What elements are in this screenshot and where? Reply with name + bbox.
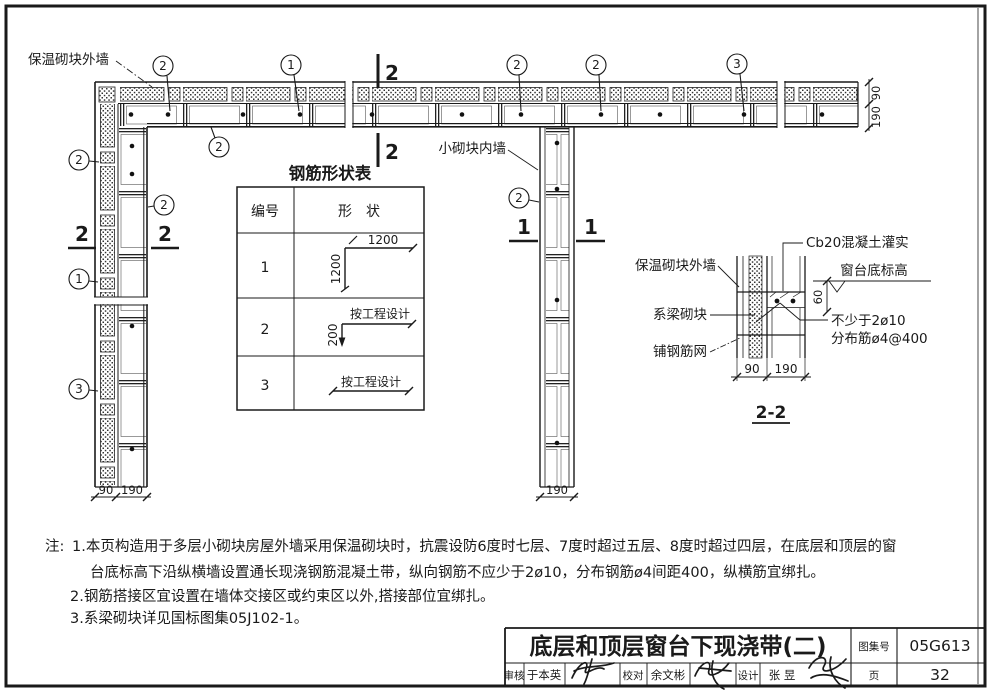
row3-dim-h: 按工程设计 <box>341 374 401 389</box>
callout-2: 2 <box>215 140 223 154</box>
cb20-label: Cb20混凝土灌实 <box>806 235 909 251</box>
col-header-no: 编号 <box>251 204 279 220</box>
row1-dim-h: 1200 <box>368 233 399 247</box>
rebar-shape-table: 钢筋形状表 编号 形 状 1 1200 1200 2 按工程设计 200 3 <box>237 163 424 410</box>
designer-name: 张 昱 <box>769 668 796 682</box>
row2-no: 2 <box>261 322 270 338</box>
proofer-name: 余文彬 <box>651 668 686 682</box>
callout-2: 2 <box>513 58 521 72</box>
callout-2: 2 <box>160 198 168 212</box>
section-mark-2-bottom: 2 <box>378 133 399 167</box>
signature-scribbles <box>572 657 848 689</box>
drawing-canvas: 90 190 <box>0 0 995 692</box>
callout-2: 2 <box>592 58 600 72</box>
callout-3: 3 <box>75 382 83 396</box>
row2-shape <box>339 320 416 347</box>
section-2-label: 2 <box>385 140 399 164</box>
callout-3: 3 <box>733 57 741 71</box>
interior-wall-label: 小砌块内墙 <box>439 141 507 157</box>
wall-thickness-dim: 90 190 <box>865 78 883 132</box>
dim-60: 60 <box>811 290 825 305</box>
rebar-table-title: 钢筋形状表 <box>289 163 372 183</box>
dim-left-190: 190 <box>121 483 143 497</box>
callout-2: 2 <box>75 153 83 167</box>
dim-left-90: 90 <box>99 483 114 497</box>
exterior-wall-label: 保温砌块外墙 <box>28 52 109 68</box>
wall-break-mark-left <box>93 297 149 305</box>
section-2-label: 2 <box>158 222 172 246</box>
note-line-3: 2.钢筋搭接区宜设置在墙体交接区或约束区以外,搭接部位宜绑扎。 <box>70 587 494 605</box>
dim-right-190: 190 <box>869 106 883 128</box>
rebar-mesh-label: 铺钢筋网 <box>653 343 707 360</box>
detail-dim-90: 90 <box>744 362 759 376</box>
exterior-wall-vertical: 90 190 <box>91 82 151 501</box>
row1-dim-v: 1200 <box>329 254 343 285</box>
callout-2: 2 <box>159 59 167 73</box>
section-2-label: 2 <box>75 222 89 246</box>
callout-1: 1 <box>287 58 295 72</box>
page-number: 32 <box>930 666 950 684</box>
left-wall-bottom-dim: 90 190 <box>91 483 151 501</box>
signature-scribble-designer <box>809 657 848 688</box>
review-label: 审核 <box>504 669 525 682</box>
callout-2: 2 <box>515 191 523 205</box>
callout-1: 1 <box>75 272 83 286</box>
detail-dim-60: 60 <box>811 277 831 316</box>
row2-dim-v: 200 <box>326 324 340 347</box>
page-label: 页 <box>869 670 880 682</box>
drawing-sheet: 90 190 <box>0 0 995 692</box>
reviewer-name: 于本英 <box>527 668 562 682</box>
rebar-min-label: 不少于2ø10 <box>831 313 906 329</box>
note-line-2: 台底标高下沿纵横墙设置通长现浇钢筋混凝土带，纵向钢筋不应少于2ø10，分布钢筋ø… <box>90 563 825 581</box>
detail-dim-190: 190 <box>775 362 798 376</box>
interior-wall: 190 <box>536 127 578 501</box>
notes: 注: 1.本页构造用于多层小砌块房屋外墙采用保温砌块时，抗震设防6度时七层、7度… <box>45 537 897 627</box>
sill-elevation-label: 窗台底标高 <box>840 262 908 279</box>
sill-elevation-mark <box>813 281 931 292</box>
row3-no: 3 <box>261 378 270 394</box>
design-label: 设计 <box>738 669 759 682</box>
title-block: 底层和顶层窗台下现浇带(二) 图集号 05G613 页 32 审核 于本英 校对… <box>504 628 985 689</box>
detail-wall-section <box>737 256 828 358</box>
row2-dim-h: 按工程设计 <box>350 306 410 321</box>
proof-label: 校对 <box>623 669 644 682</box>
section-2-label: 2 <box>385 61 399 85</box>
detail-exterior-wall-label: 保温砌块外墙 <box>635 258 716 274</box>
interior-wall-bottom-dim: 190 <box>536 483 578 501</box>
detail-2-2: 保温砌块外墙 系梁砌块 铺钢筋网 Cb20混凝土灌实 窗台底标高 60 不少于2… <box>635 235 931 423</box>
section-1-label: 1 <box>517 215 531 239</box>
row1-no: 1 <box>261 260 270 276</box>
detail-title: 2-2 <box>756 403 787 423</box>
col-header-shape: 形 状 <box>338 204 380 220</box>
dim-interior-190: 190 <box>546 483 568 497</box>
tie-beam-block-label: 系梁砌块 <box>653 307 707 323</box>
section-mark-2-top: 2 <box>378 54 399 88</box>
detail-bottom-dim: 90 190 <box>731 358 811 381</box>
dim-right-90: 90 <box>869 86 883 101</box>
notes-prefix: 注: <box>45 538 64 555</box>
section-1-label: 1 <box>584 215 598 239</box>
atlas-no-label: 图集号 <box>858 640 890 653</box>
note-line-1: 1.本页构造用于多层小砌块房屋外墙采用保温砌块时，抗震设防6度时七层、7度时超过… <box>72 537 897 555</box>
sheet-title: 底层和顶层窗台下现浇带(二) <box>529 633 826 660</box>
atlas-no-value: 05G613 <box>909 637 970 655</box>
distribution-bar-label: 分布筋ø4@400 <box>831 330 928 347</box>
note-line-4: 3.系梁砌块详见国标图集05J102-1。 <box>70 610 308 627</box>
